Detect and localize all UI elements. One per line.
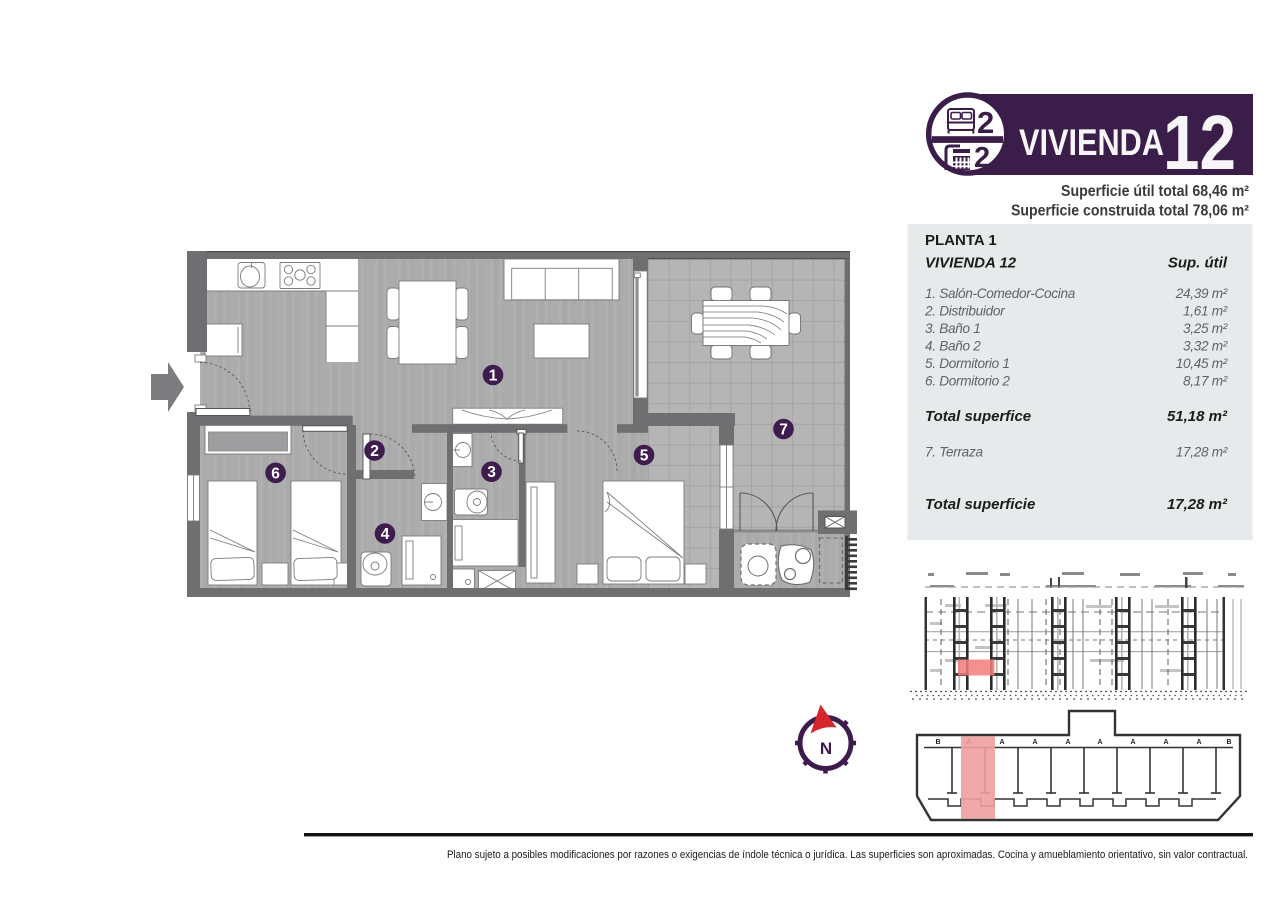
svg-text:2: 2 — [370, 443, 379, 460]
svg-text:10,45 m²: 10,45 m² — [1176, 356, 1228, 371]
svg-text:1: 1 — [489, 368, 498, 385]
svg-text:VIVIENDA: VIVIENDA — [1019, 122, 1164, 163]
svg-text:Total superfice: Total superfice — [925, 408, 1031, 425]
svg-text:2: 2 — [977, 105, 994, 140]
svg-text:1,61 m²: 1,61 m² — [1183, 304, 1228, 319]
svg-text:A: A — [1097, 739, 1102, 746]
svg-text:4. Baño 2: 4. Baño 2 — [925, 339, 981, 354]
svg-text:3. Baño 1: 3. Baño 1 — [925, 321, 981, 336]
svg-text:Superficie construida total 78: Superficie construida total 78,06 m² — [1011, 203, 1249, 220]
svg-text:A: A — [999, 739, 1004, 746]
svg-text:Total superficie: Total superficie — [925, 496, 1035, 513]
svg-text:5: 5 — [640, 448, 649, 465]
svg-text:5. Dormitorio 1: 5. Dormitorio 1 — [925, 356, 1010, 371]
svg-text:VIVIENDA 12: VIVIENDA 12 — [925, 255, 1017, 272]
svg-text:3,32 m²: 3,32 m² — [1183, 339, 1228, 354]
svg-text:Plano sujeto a posibles modifi: Plano sujeto a posibles modificaciones p… — [447, 849, 1248, 861]
svg-text:17,28 m²: 17,28 m² — [1167, 496, 1228, 513]
svg-text:B: B — [1226, 739, 1231, 746]
svg-text:12: 12 — [1163, 100, 1236, 186]
svg-text:51,18 m²: 51,18 m² — [1167, 408, 1228, 425]
svg-text:2. Distribuidor: 2. Distribuidor — [924, 304, 1005, 319]
svg-text:Superficie útil total 68,46 m²: Superficie útil total 68,46 m² — [1061, 183, 1249, 200]
svg-text:7. Terraza: 7. Terraza — [925, 445, 983, 460]
svg-text:24,39 m²: 24,39 m² — [1175, 286, 1228, 301]
svg-text:8,17 m²: 8,17 m² — [1183, 374, 1228, 389]
svg-text:3,25 m²: 3,25 m² — [1183, 321, 1228, 336]
svg-text:A: A — [1130, 739, 1135, 746]
svg-text:A: A — [1196, 739, 1201, 746]
svg-text:B: B — [935, 739, 940, 746]
svg-text:4: 4 — [381, 526, 390, 543]
svg-text:Sup. útil: Sup. útil — [1168, 255, 1228, 272]
svg-text:A: A — [1163, 739, 1168, 746]
svg-text:6: 6 — [271, 465, 280, 482]
svg-text:6. Dormitorio 2: 6. Dormitorio 2 — [925, 374, 1010, 389]
svg-text:A: A — [1065, 739, 1070, 746]
svg-text:2: 2 — [974, 142, 990, 174]
svg-text:1. Salón-Comedor-Cocina: 1. Salón-Comedor-Cocina — [925, 286, 1076, 301]
svg-text:7: 7 — [779, 422, 788, 439]
svg-text:A: A — [1032, 739, 1037, 746]
svg-text:PLANTA 1: PLANTA 1 — [925, 232, 997, 249]
svg-text:17,28 m²: 17,28 m² — [1176, 445, 1228, 460]
svg-text:N: N — [820, 739, 832, 758]
svg-text:3: 3 — [487, 464, 496, 481]
